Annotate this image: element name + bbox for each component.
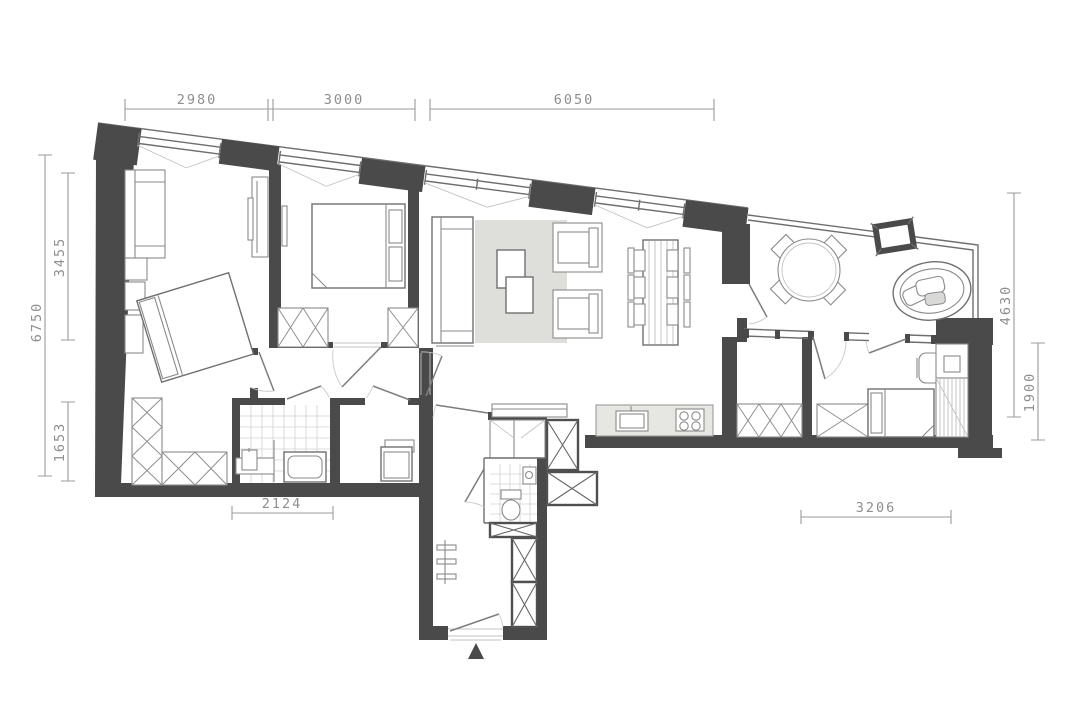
dimension-label: 4630: [998, 285, 1014, 326]
duct-box: [512, 538, 537, 627]
dimension-label: 1653: [52, 422, 68, 463]
door-bedroom3: [813, 337, 846, 379]
floor-plan-drawing: 2980 3000 6050 6750 3455 1653 4630 1900 …: [0, 0, 1092, 715]
right-top-wall-block: [936, 318, 993, 345]
entrance-hall: [433, 405, 545, 659]
window-icon: [136, 132, 221, 171]
bedroom34-divider-wall: [802, 337, 812, 437]
door-bedroom4: [866, 339, 906, 353]
nightstand: [125, 315, 143, 353]
door-laundry: [366, 386, 410, 400]
tv-cabinet: [248, 177, 268, 257]
wardrobe: [737, 404, 802, 437]
pillow: [871, 393, 882, 433]
kitchen-bedroom-wall: [722, 337, 737, 435]
pillow: [389, 247, 402, 281]
duct-box: [490, 523, 537, 537]
single-bed: [868, 389, 934, 437]
terrace-column: [722, 224, 750, 284]
terrace-frame: [871, 217, 919, 256]
monitor-icon: [944, 356, 960, 372]
door-wc: [465, 469, 484, 507]
bedroom-2: [278, 204, 418, 347]
dimension-top: 2980 3000 6050: [125, 92, 714, 121]
wardrobe: [132, 398, 227, 485]
bed: [137, 273, 254, 382]
bathroom-left-wall: [232, 398, 240, 490]
window-icon: [277, 151, 361, 190]
wc-sink: [523, 467, 536, 484]
bathroom-right-wall: [330, 398, 340, 490]
washbasin: [236, 448, 274, 474]
egg-chair: [889, 257, 974, 325]
desk: [936, 344, 968, 378]
washing-machine: [381, 440, 414, 481]
door-bedroom2: [333, 343, 381, 387]
bathroom-top-wall: [232, 398, 285, 405]
right-wall-foot: [958, 448, 1002, 458]
laundry-top-wall: [408, 398, 419, 405]
top-wall-outer-line: [98, 123, 748, 208]
door-bathroom: [287, 386, 329, 399]
side-table: [125, 258, 147, 280]
dimension-label: 6750: [29, 302, 45, 343]
armchair: [553, 223, 602, 272]
toilet-icon: [501, 490, 521, 520]
kitchen: [547, 405, 713, 505]
right-exterior-wall: [966, 345, 992, 448]
hall-closet: [490, 420, 545, 458]
bedroom-window-wall: [743, 329, 937, 344]
door-terrace: [749, 284, 767, 324]
wardrobe-panel: [936, 378, 968, 437]
door-bedroom1: [250, 352, 274, 391]
laundry-top-wall: [340, 398, 365, 405]
tv-icon: [282, 206, 287, 246]
duct-box: [547, 420, 597, 505]
dimension-label: 2124: [262, 496, 303, 512]
window-icon: [423, 170, 531, 212]
wardrobe: [278, 308, 418, 347]
window-pier: [528, 180, 595, 215]
dimension-label: 1900: [1022, 372, 1038, 413]
hob-icon: [676, 409, 704, 431]
wc: [465, 458, 545, 523]
walls: [93, 123, 1002, 640]
terrace: [748, 215, 978, 325]
floor-plan-page: 2980 3000 6050 6750 3455 1653 4630 1900 …: [0, 0, 1092, 715]
dimension-label: 6050: [554, 92, 595, 108]
laundry-room: [381, 440, 414, 481]
entrance-marker-icon: [468, 643, 484, 659]
armchair: [553, 290, 602, 338]
hall-bottom-wall: [419, 626, 448, 640]
pillow: [389, 210, 402, 243]
sofa: [432, 217, 474, 346]
wardrobe: [817, 404, 868, 437]
door-hall-living: [433, 405, 488, 418]
terrace-round-table: [770, 234, 846, 304]
sideboard: [492, 404, 567, 417]
coat-rack: [437, 540, 456, 584]
doors-inner: [250, 343, 442, 400]
dimension-label: 3000: [324, 92, 365, 108]
dimension-label: 2980: [177, 92, 218, 108]
bathtub: [284, 452, 326, 482]
dimension-label: 3455: [52, 237, 68, 278]
loveseat: [125, 170, 165, 258]
dimension-label: 3206: [856, 500, 897, 516]
bathroom: [236, 405, 330, 483]
tv-icon: [248, 198, 253, 240]
entrance-door: [448, 614, 503, 640]
dimension-right: 4630 1900: [998, 193, 1045, 440]
right-wing: [737, 329, 968, 437]
dimension-left: 6750 3455 1653: [29, 155, 75, 481]
double-bed: [312, 204, 405, 288]
